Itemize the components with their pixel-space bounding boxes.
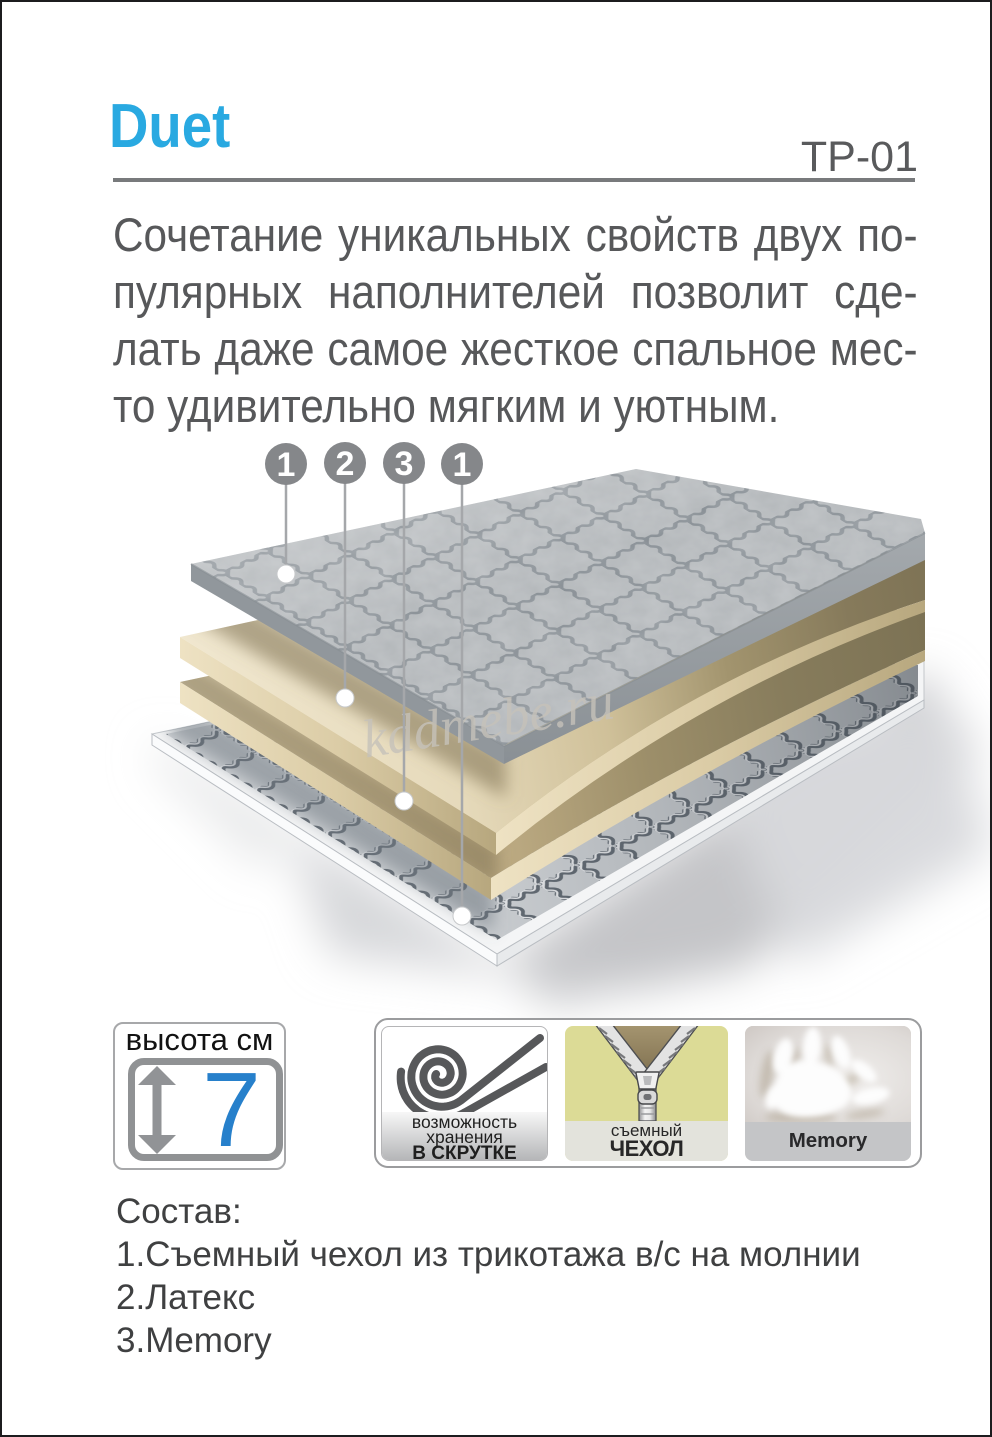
svg-text:3: 3	[395, 445, 414, 483]
svg-text:1: 1	[277, 446, 296, 484]
svg-text:2: 2	[336, 445, 355, 483]
svg-text:1: 1	[453, 446, 472, 484]
